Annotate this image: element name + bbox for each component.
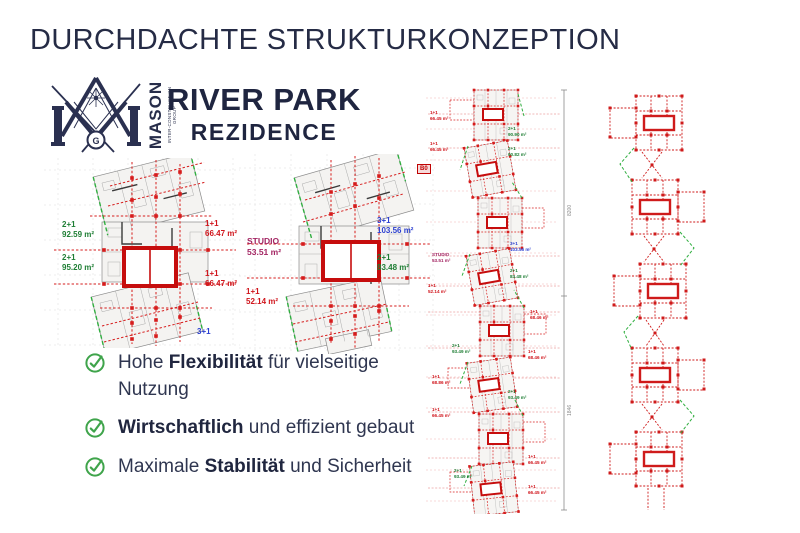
check-circle-icon	[84, 456, 106, 478]
unit-label: 3+1	[197, 327, 211, 337]
page-title: DURCHDACHTE STRUKTURKONZEPTION	[30, 24, 620, 57]
unit-label: 1+1 68.46 m²	[530, 309, 548, 320]
benefits-list: Hohe Flexibilität für vielseitige Nutzun…	[84, 350, 429, 480]
structure-diagram-strip	[606, 90, 710, 514]
unit-label: 1+1 66.45 m²	[432, 407, 450, 418]
unit-label: 2+1 83.48 m²	[377, 253, 409, 273]
unit-label: 1+1 66.47 m²	[205, 269, 237, 289]
unit-label: 1+1 66.45 m²	[430, 110, 448, 121]
check-circle-icon	[84, 417, 106, 439]
project-title-block: RIVER PARK REZIDENCE	[166, 84, 362, 146]
project-name: RIVER PARK	[166, 84, 362, 115]
unit-label: 2+1 90.82 m²	[508, 146, 526, 157]
logo-brand-text: MASON	[146, 77, 166, 153]
bullet-text: Wirtschaftlich und effizient gebaut	[118, 415, 414, 442]
unit-label: 1+1 66.45 m²	[528, 484, 546, 495]
unit-label: STUDIO 53.51 m²	[432, 252, 450, 263]
unit-label: 1+1 68.46 m²	[528, 349, 546, 360]
list-item: Maximale Stabilität und Sicherheit	[84, 454, 429, 481]
unit-label: 2+1 93.49 m²	[508, 389, 526, 400]
unit-label: 2+1 92.59 m²	[62, 220, 94, 240]
unit-label: 1+1 66.47 m²	[205, 219, 237, 239]
unit-label: 1+1 66.45 m²	[528, 454, 546, 465]
unit-label: 1+1 68.86 m²	[432, 374, 450, 385]
list-item: Wirtschaftlich und effizient gebaut	[84, 415, 429, 442]
unit-label: 2+1 95.20 m²	[62, 253, 94, 273]
unit-label: 3+1 103.56 m²	[377, 216, 413, 236]
project-subname: REZIDENCE	[166, 119, 362, 146]
unit-label: 1+1 52.14 m²	[246, 287, 278, 307]
check-circle-icon	[84, 352, 106, 374]
unit-label: STUDIO 53.51 m²	[247, 236, 281, 257]
dimension-label: 1846	[567, 405, 573, 416]
unit-label: 2+1 93.49 m²	[452, 343, 470, 354]
bullet-text: Maximale Stabilität und Sicherheit	[118, 454, 412, 481]
unit-label: 1+1 52.14 m²	[428, 283, 446, 294]
mason-logo-icon: G	[48, 74, 144, 158]
list-item: Hohe Flexibilität für vielseitige Nutzun…	[84, 350, 429, 403]
unit-label: 2+1 93.49 m²	[454, 468, 472, 479]
unit-label: 1+1 66.45 m²	[430, 141, 448, 152]
slide: DURCHDACHTE STRUKTURKONZEPTION G MASON I…	[0, 0, 800, 533]
bullet-text: Hohe Flexibilität für vielseitige Nutzun…	[118, 350, 429, 403]
unit-label: 2+1 90.90 m²	[508, 126, 526, 137]
logo-g-letter: G	[92, 136, 99, 146]
unit-label: 3+1 103.56 m²	[510, 241, 531, 252]
unit-label: 2+1 83.48 m²	[510, 268, 528, 279]
dimension-label: 8200	[567, 205, 573, 216]
